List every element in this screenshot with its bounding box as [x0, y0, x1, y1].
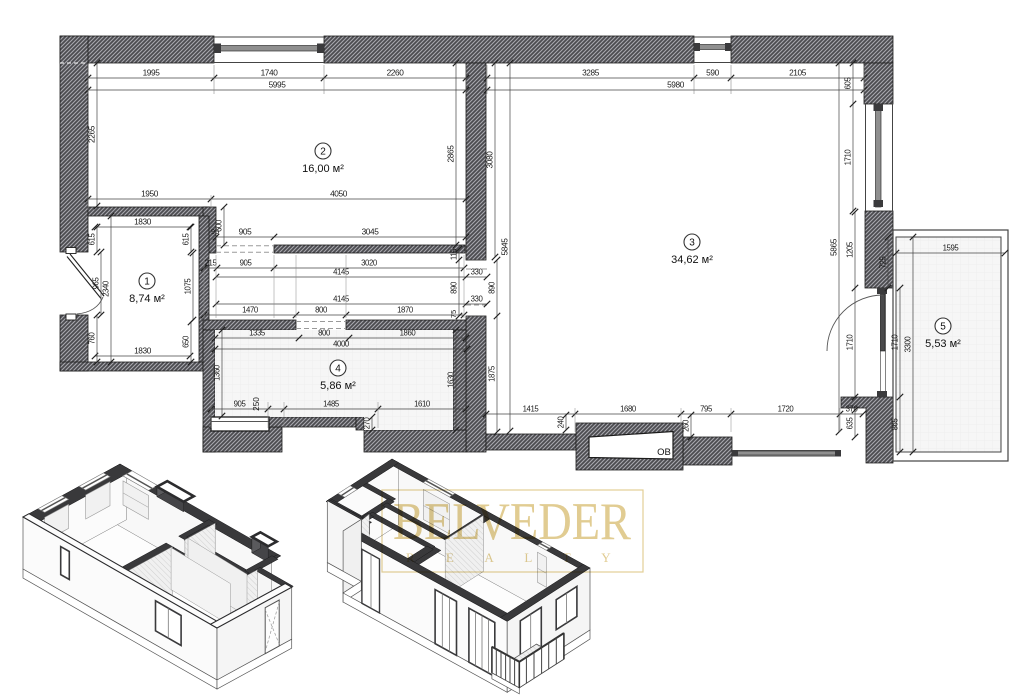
- svg-text:725: 725: [879, 256, 888, 269]
- svg-text:1710: 1710: [891, 334, 900, 351]
- svg-text:2: 2: [320, 146, 326, 157]
- svg-text:800: 800: [318, 329, 331, 338]
- svg-text:1680: 1680: [620, 405, 637, 414]
- svg-text:4: 4: [335, 363, 341, 374]
- svg-text:ОВ: ОВ: [657, 447, 671, 458]
- svg-text:1205: 1205: [846, 241, 855, 258]
- svg-text:330: 330: [471, 268, 484, 277]
- svg-text:3: 3: [689, 237, 695, 248]
- svg-text:4145: 4145: [333, 268, 350, 277]
- svg-text:3285: 3285: [582, 68, 600, 78]
- svg-text:760: 760: [88, 332, 97, 345]
- svg-text:1995: 1995: [143, 68, 161, 78]
- svg-text:1740: 1740: [261, 68, 279, 78]
- svg-text:3020: 3020: [361, 259, 378, 268]
- svg-text:240: 240: [557, 416, 566, 429]
- svg-text:1075: 1075: [184, 278, 193, 295]
- svg-text:5995: 5995: [269, 80, 287, 90]
- svg-text:965: 965: [92, 277, 101, 290]
- svg-text:5,86 м²: 5,86 м²: [320, 380, 356, 392]
- svg-text:2105: 2105: [789, 68, 807, 78]
- svg-text:4145: 4145: [333, 295, 350, 304]
- svg-text:3045: 3045: [362, 227, 380, 237]
- svg-text:330: 330: [471, 295, 484, 304]
- svg-text:1485: 1485: [323, 400, 340, 409]
- svg-text:1710: 1710: [844, 149, 853, 166]
- svg-text:590: 590: [706, 68, 719, 78]
- svg-text:615: 615: [182, 233, 191, 246]
- svg-text:1595: 1595: [943, 244, 960, 253]
- svg-text:215: 215: [205, 259, 218, 268]
- svg-text:270: 270: [363, 417, 372, 430]
- svg-text:890: 890: [488, 281, 497, 294]
- svg-text:5980: 5980: [667, 80, 685, 90]
- svg-text:1870: 1870: [397, 306, 414, 315]
- svg-text:1830: 1830: [134, 217, 152, 227]
- svg-text:905: 905: [234, 400, 247, 409]
- svg-text:1875: 1875: [488, 365, 497, 382]
- svg-text:34,62 м²: 34,62 м²: [671, 254, 713, 266]
- svg-text:1630: 1630: [447, 371, 456, 388]
- svg-text:905: 905: [239, 227, 252, 237]
- svg-text:1950: 1950: [141, 189, 159, 199]
- svg-text:1610: 1610: [414, 400, 431, 409]
- svg-text:8,74 м²: 8,74 м²: [129, 293, 165, 305]
- svg-text:1415: 1415: [523, 405, 540, 414]
- svg-text:115: 115: [450, 248, 459, 260]
- svg-text:5: 5: [940, 321, 946, 332]
- svg-text:3080: 3080: [485, 151, 495, 169]
- svg-text:1710: 1710: [846, 334, 855, 351]
- svg-text:1830: 1830: [134, 346, 152, 356]
- svg-text:260: 260: [682, 419, 691, 432]
- svg-text:5845: 5845: [500, 238, 510, 256]
- svg-text:650: 650: [182, 335, 191, 348]
- svg-text:5,53 м²: 5,53 м²: [925, 338, 961, 350]
- svg-text:R E A L T Y: R E A L T Y: [406, 550, 625, 565]
- svg-text:1470: 1470: [242, 306, 259, 315]
- svg-text:1860: 1860: [400, 329, 417, 338]
- svg-text:2265: 2265: [87, 125, 97, 143]
- svg-text:865: 865: [891, 418, 900, 431]
- svg-text:890: 890: [450, 281, 459, 294]
- svg-text:795: 795: [700, 405, 713, 414]
- svg-text:4000: 4000: [333, 340, 350, 349]
- svg-text:4050: 4050: [330, 189, 348, 199]
- svg-text:250: 250: [252, 397, 261, 411]
- svg-text:905: 905: [240, 259, 253, 268]
- svg-text:75: 75: [449, 310, 458, 318]
- svg-text:635: 635: [846, 417, 855, 430]
- svg-text:2340: 2340: [102, 280, 111, 297]
- svg-text:16,00 м²: 16,00 м²: [302, 163, 344, 175]
- svg-text:615: 615: [88, 233, 97, 246]
- svg-text:1360: 1360: [213, 364, 222, 381]
- svg-text:95: 95: [211, 227, 219, 236]
- svg-text:1: 1: [144, 276, 150, 287]
- svg-text:2260: 2260: [387, 68, 405, 78]
- svg-text:1720: 1720: [778, 405, 795, 414]
- svg-text:3300: 3300: [904, 336, 913, 353]
- svg-text:800: 800: [315, 306, 328, 315]
- svg-text:BELVEDER: BELVEDER: [393, 493, 632, 551]
- svg-text:1335: 1335: [249, 329, 266, 338]
- svg-text:2865: 2865: [446, 145, 456, 163]
- svg-text:5865: 5865: [829, 238, 839, 256]
- svg-text:605: 605: [844, 77, 853, 90]
